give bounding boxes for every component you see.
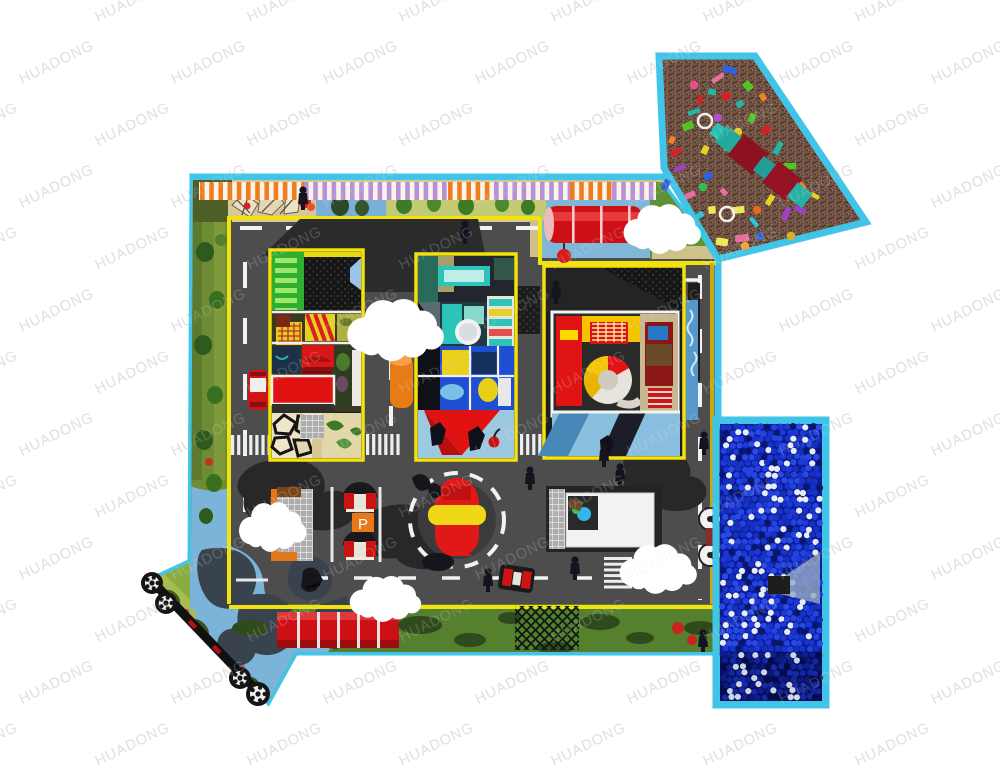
svg-text:P: P <box>358 516 368 533</box>
